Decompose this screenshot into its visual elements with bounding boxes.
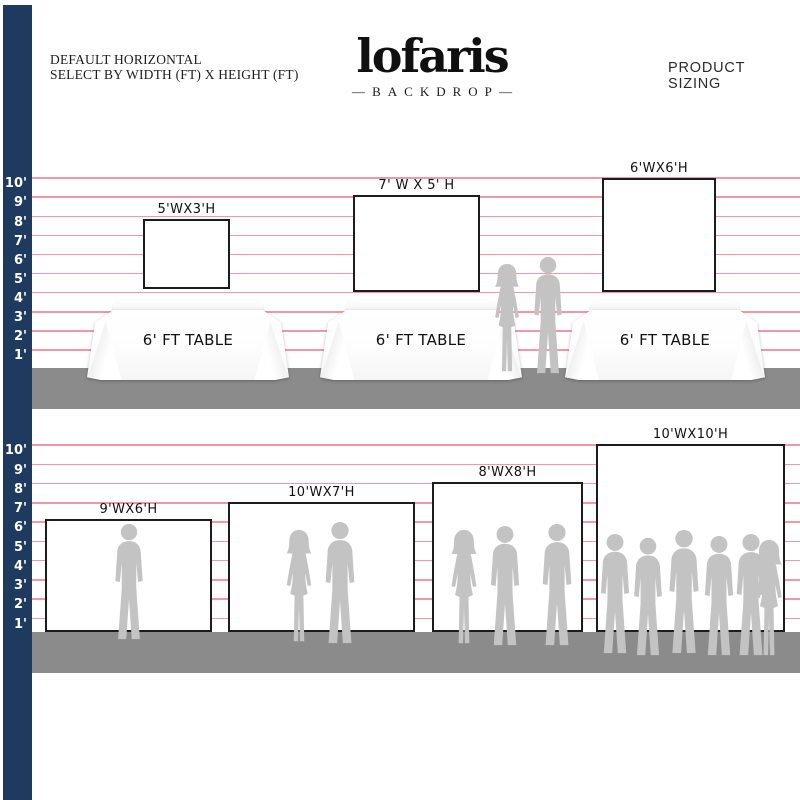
brand-logo: lofaris BACKDROP bbox=[312, 30, 552, 100]
backdrop-size-label: 10'WX7'H bbox=[228, 485, 415, 500]
backdrop-6x6: 6'WX6'H bbox=[602, 161, 716, 292]
table-label: 6' FT TABLE bbox=[565, 331, 765, 349]
ruler-label: 4' bbox=[3, 559, 29, 575]
table-1: 6' FT TABLE bbox=[87, 300, 289, 380]
ruler-label: 6' bbox=[3, 520, 29, 536]
silhouette-group-10x10 bbox=[592, 527, 786, 658]
silhouette-trio-8x8 bbox=[444, 523, 584, 649]
foot-grid-line bbox=[32, 292, 800, 294]
ruler-label: 8' bbox=[3, 215, 29, 231]
ruler-label: 1' bbox=[3, 348, 29, 364]
ruler-label: 4' bbox=[3, 291, 29, 307]
ruler-label: 5' bbox=[3, 272, 29, 288]
ruler-label: 7' bbox=[3, 234, 29, 250]
ruler-label: 2' bbox=[3, 597, 29, 613]
silhouette-couple-top bbox=[487, 256, 571, 375]
backdrop-5x3: 5'WX3'H bbox=[143, 202, 230, 289]
product-sizing-page: DEFAULT HORIZONTAL SELECT BY WIDTH (FT) … bbox=[0, 0, 800, 800]
ruler-label: 5' bbox=[3, 540, 29, 556]
ruler-label: 6' bbox=[3, 253, 29, 269]
ruler-label: 10' bbox=[3, 443, 29, 459]
backdrop-size-label: 7' W X 5' H bbox=[353, 178, 480, 193]
ruler-label: 1' bbox=[3, 617, 29, 633]
backdrop-size-label: 8'WX8'H bbox=[432, 465, 583, 480]
page-title: PRODUCT SIZING bbox=[668, 60, 800, 92]
ruler-label: 9' bbox=[3, 195, 29, 211]
ruler-label: 10' bbox=[3, 176, 29, 192]
silhouette-couple-10x7 bbox=[280, 521, 366, 646]
backdrop-size-label: 9'WX6'H bbox=[45, 502, 212, 517]
subtitle-line1: DEFAULT HORIZONTAL bbox=[50, 53, 299, 68]
backdrop-rect bbox=[353, 195, 480, 292]
ruler-label: 8' bbox=[3, 482, 29, 498]
backdrop-size-label: 5'WX3'H bbox=[143, 202, 230, 217]
ruler-label: 9' bbox=[3, 463, 29, 479]
backdrop-rect bbox=[602, 178, 716, 292]
ruler-label: 2' bbox=[3, 329, 29, 345]
backdrop-size-label: 10'WX10'H bbox=[596, 427, 785, 442]
ruler-label: 3' bbox=[3, 578, 29, 594]
brand-name: lofaris bbox=[312, 30, 552, 82]
backdrop-rect bbox=[143, 219, 230, 289]
ruler-label: 3' bbox=[3, 310, 29, 326]
silhouette-man-9x6 bbox=[99, 523, 157, 642]
backdrop-7x5: 7' W X 5' H bbox=[353, 178, 480, 292]
table-3: 6' FT TABLE bbox=[565, 300, 765, 380]
ruler-label: 7' bbox=[3, 501, 29, 517]
backdrop-size-label: 6'WX6'H bbox=[602, 161, 716, 176]
subtitle-line2: SELECT BY WIDTH (FT) X HEIGHT (FT) bbox=[50, 68, 299, 83]
page-subtitle: DEFAULT HORIZONTAL SELECT BY WIDTH (FT) … bbox=[50, 53, 299, 82]
brand-tagline: BACKDROP bbox=[312, 84, 552, 100]
ruler-bar bbox=[3, 5, 32, 800]
table-label: 6' FT TABLE bbox=[87, 331, 289, 349]
